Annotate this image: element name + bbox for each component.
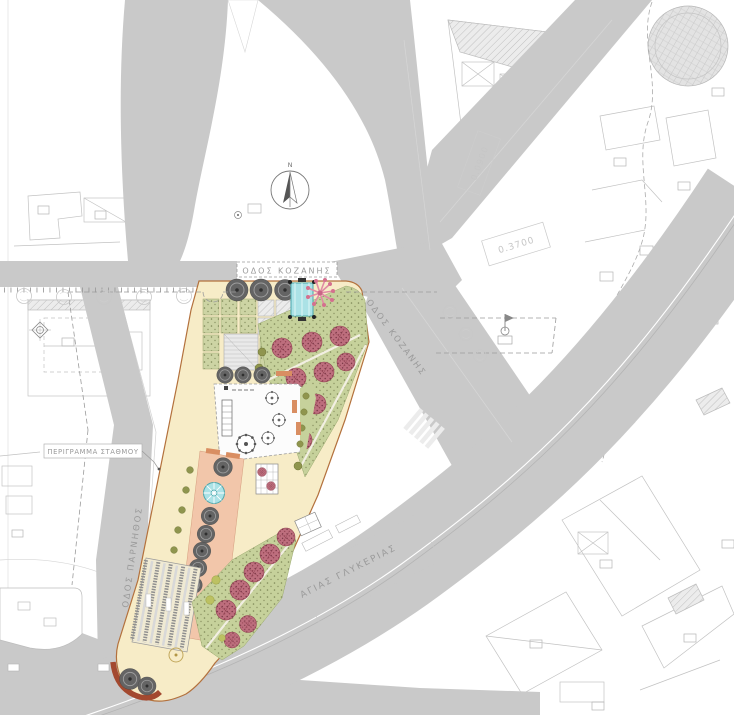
water-feature [288, 278, 316, 321]
north-label: N [288, 161, 293, 169]
benchmark-diamond-icon [29, 319, 51, 341]
round-table [236, 434, 257, 455]
site-plan: N ΟΔΟΣ ΚΟΖΑΝΗΣ ΟΔΟΣ ΚΟΖΑΝΗΣ ΟΔΟΣ ΠΑΡΝΗΘΟ… [0, 0, 734, 715]
cafe-terrace [214, 384, 316, 462]
north-arrow-icon: N [271, 161, 309, 209]
parcel-b-box: 0.3700 [482, 222, 551, 266]
garden-stairs [224, 334, 258, 370]
station-outline-label: ΠΕΡΙΓΡΑΜΜΑ ΣΤΑΘΜΟΥ [47, 448, 138, 456]
road-top-left-arm [121, 0, 228, 261]
street-label-kozanis-top: ΟΔΟΣ ΚΟΖΑΝΗΣ [242, 267, 331, 276]
site-plan-drawing: N ΟΔΟΣ ΚΟΖΑΝΗΣ ΟΔΟΣ ΚΟΖΑΝΗΣ ΟΔΟΣ ΠΑΡΝΗΘΟ… [0, 0, 734, 715]
fountain [204, 483, 225, 504]
pergola [256, 464, 278, 494]
survey-point-icon [235, 212, 242, 219]
road-top-vertical [258, 0, 438, 265]
roads-layer [0, 0, 734, 715]
flag-marker-icon [498, 314, 514, 344]
